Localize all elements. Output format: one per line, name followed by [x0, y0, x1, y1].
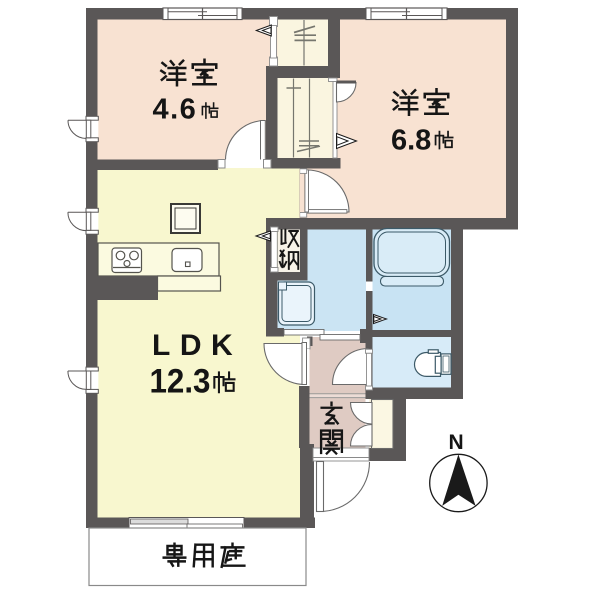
svg-text:LDK: LDK [152, 329, 242, 362]
svg-text:4.6: 4.6 [153, 94, 198, 126]
svg-text:12.3: 12.3 [150, 363, 211, 401]
svg-text:N: N [449, 431, 464, 454]
svg-text:6.8: 6.8 [391, 125, 431, 157]
